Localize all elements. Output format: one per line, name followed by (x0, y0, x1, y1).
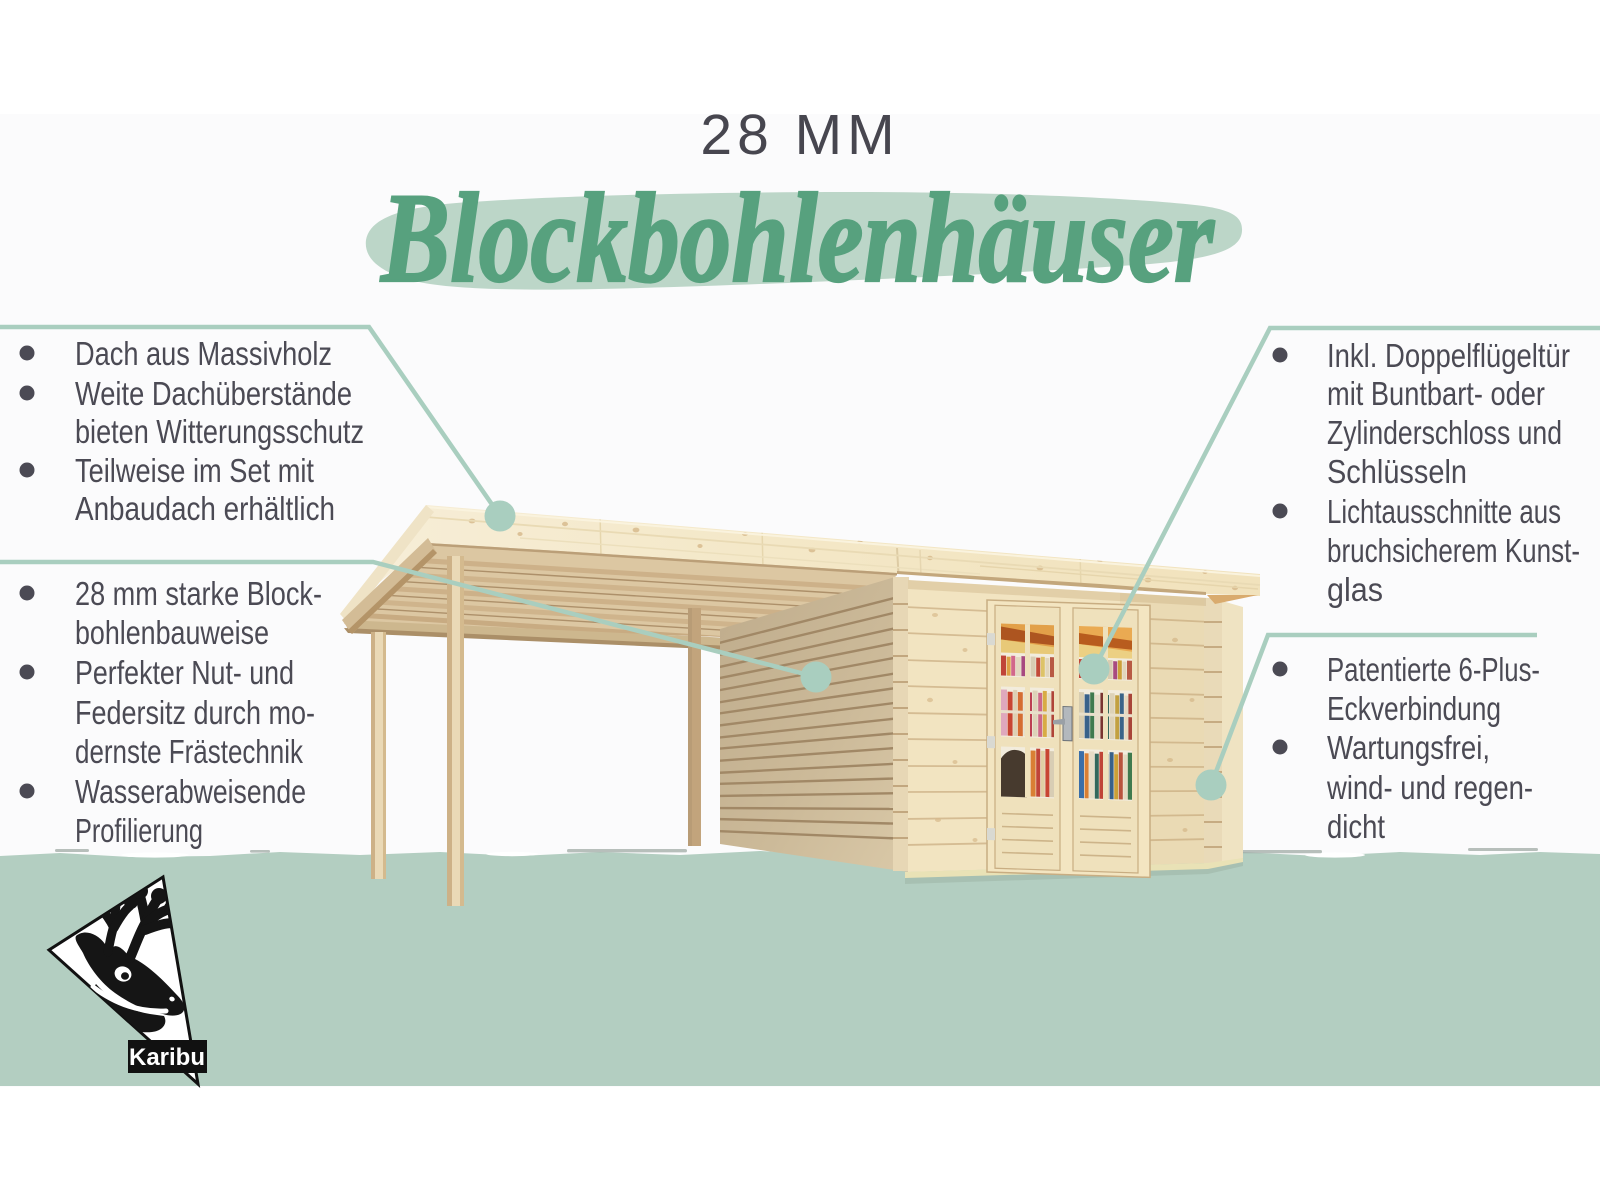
svg-text:Karibu: Karibu (129, 1044, 205, 1071)
svg-text:glas: glas (1327, 571, 1383, 608)
svg-text:Federsitz durch mo-: Federsitz durch mo- (75, 694, 315, 731)
svg-text:Inkl. Doppelflügeltür: Inkl. Doppelflügeltür (1327, 337, 1570, 374)
svg-text:Lichtausschnitte aus: Lichtausschnitte aus (1327, 493, 1561, 530)
svg-text:Eckverbindung: Eckverbindung (1327, 690, 1501, 727)
svg-text:28 mm starke Block-: 28 mm starke Block- (75, 575, 322, 612)
svg-text:bruchsicherem Kunst-: bruchsicherem Kunst- (1327, 532, 1580, 569)
svg-text:Dach aus Massivholz: Dach aus Massivholz (75, 335, 332, 372)
svg-text:Wartungsfrei,: Wartungsfrei, (1327, 729, 1490, 766)
svg-text:bieten Witterungsschutz: bieten Witterungsschutz (75, 413, 364, 450)
svg-text:wind- und regen-: wind- und regen- (1326, 769, 1533, 806)
svg-text:dernste Frästechnik: dernste Frästechnik (75, 733, 303, 770)
svg-text:Blockbohlenhäuser: Blockbohlenhäuser (379, 167, 1215, 309)
svg-text:Teilweise im Set mit: Teilweise im Set mit (75, 452, 314, 489)
svg-text:dicht: dicht (1327, 808, 1385, 845)
svg-text:28 MM: 28 MM (700, 103, 899, 167)
svg-text:Schlüsseln: Schlüsseln (1327, 453, 1467, 490)
svg-text:Perfekter Nut- und: Perfekter Nut- und (75, 654, 294, 691)
svg-text:Zylinderschloss und: Zylinderschloss und (1327, 414, 1562, 451)
svg-text:Patentierte 6-Plus-: Patentierte 6-Plus- (1327, 651, 1540, 688)
svg-text:bohlenbauweise: bohlenbauweise (75, 614, 269, 651)
svg-text:Weite Dachüberstände: Weite Dachüberstände (75, 375, 352, 412)
svg-text:Profilierung: Profilierung (75, 812, 203, 849)
svg-text:Wasserabweisende: Wasserabweisende (75, 773, 306, 810)
svg-text:mit Buntbart- oder: mit Buntbart- oder (1327, 375, 1545, 412)
svg-text:Anbaudach erhältlich: Anbaudach erhältlich (75, 490, 335, 527)
